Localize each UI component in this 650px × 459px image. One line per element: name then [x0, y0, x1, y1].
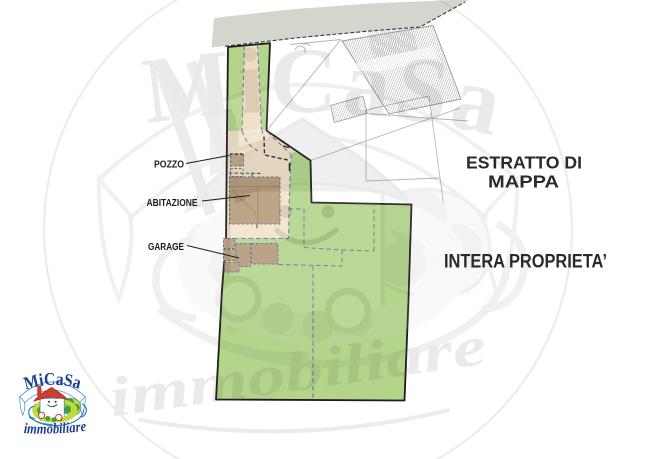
svg-text:ABITAZIONE: ABITAZIONE: [147, 197, 198, 209]
svg-text:INTERA PROPRIETA’: INTERA PROPRIETA’: [444, 252, 607, 273]
svg-text:ESTRATTO DI: ESTRATTO DI: [466, 153, 582, 173]
svg-text:GARAGE: GARAGE: [148, 241, 184, 253]
svg-text:POZZO: POZZO: [154, 159, 184, 171]
svg-text:MAPPA: MAPPA: [488, 172, 559, 192]
